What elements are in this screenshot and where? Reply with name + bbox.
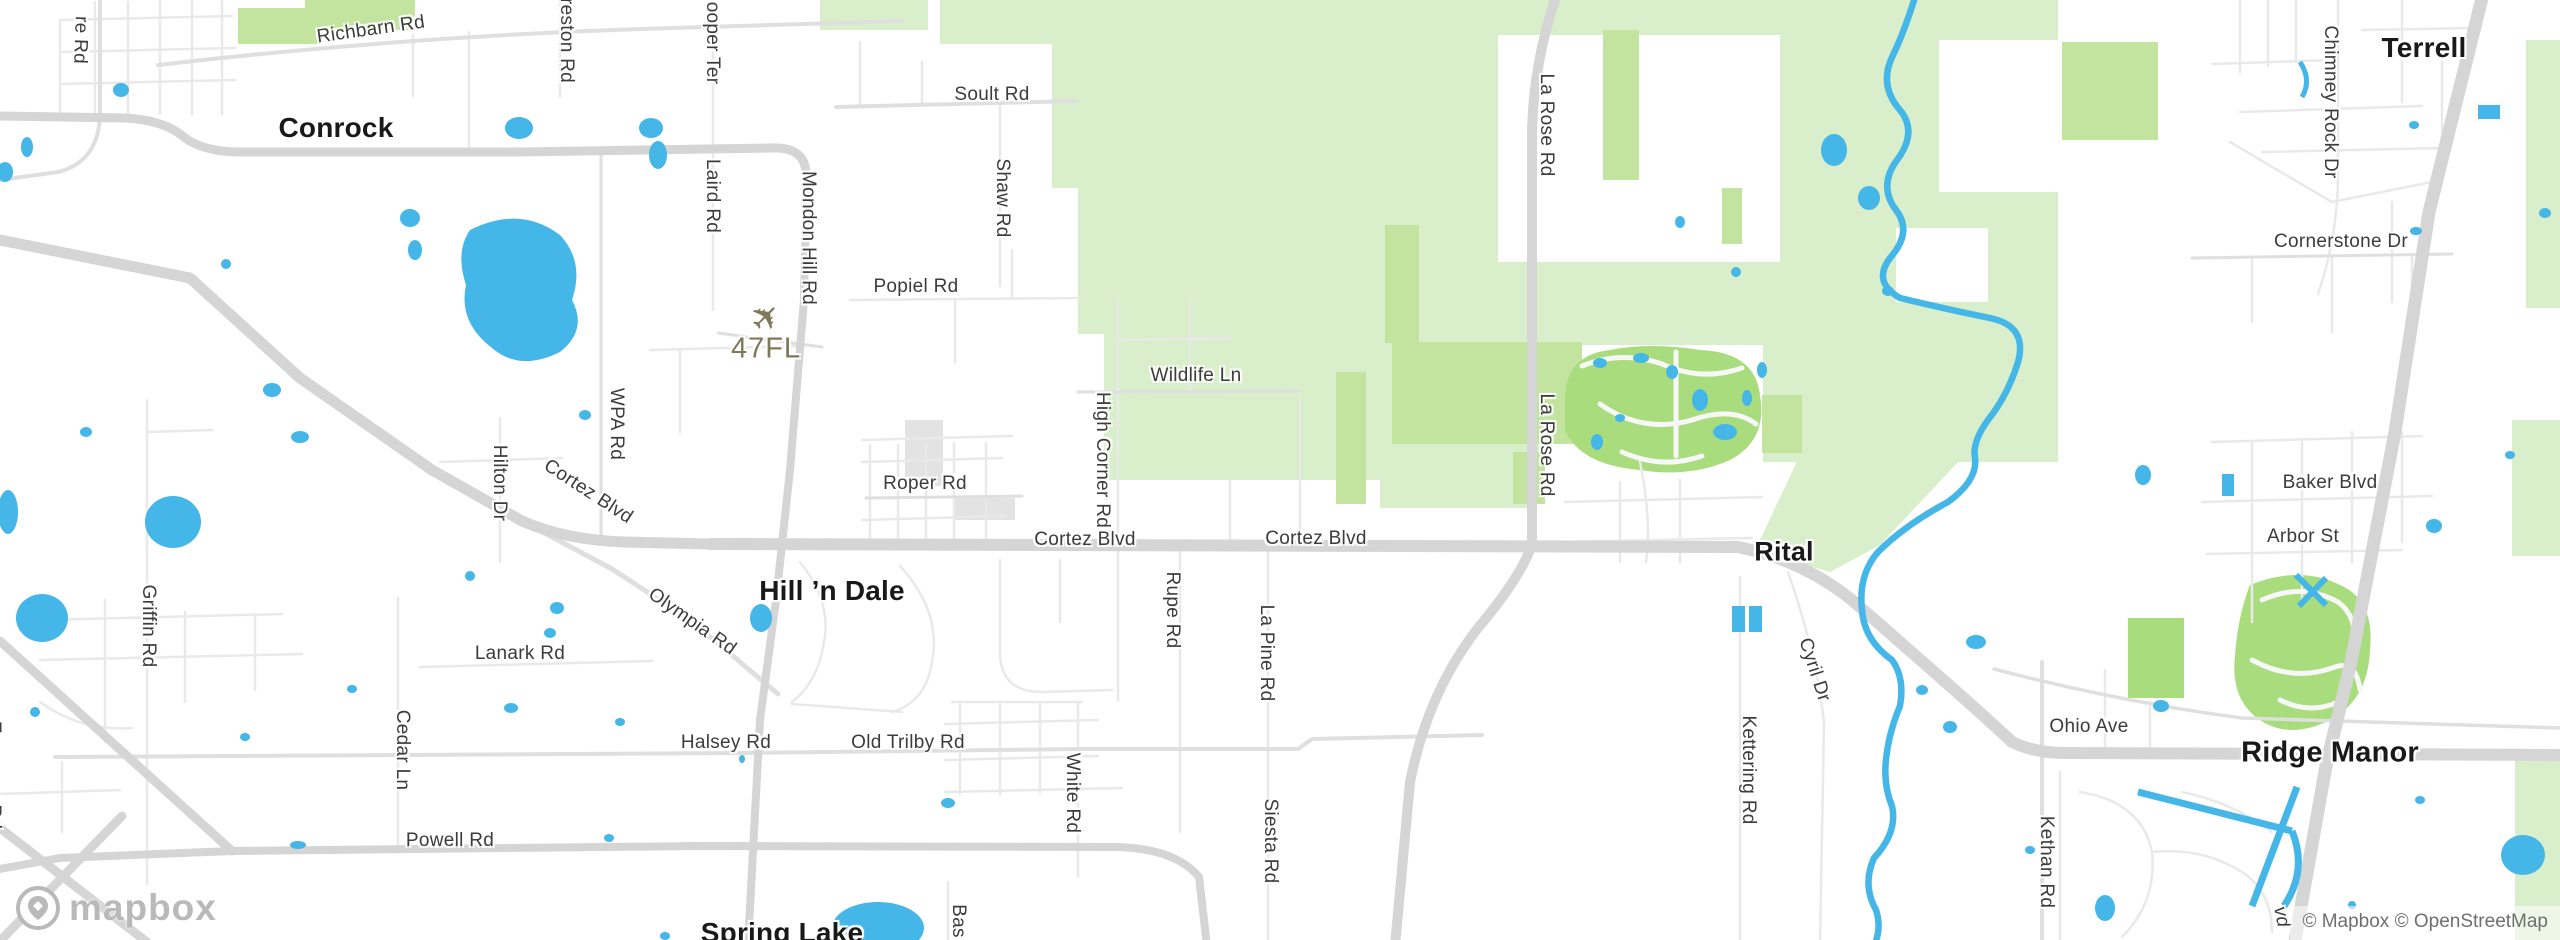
mapbox-logo[interactable]: mapbox [14, 884, 217, 932]
mapbox-pin-icon [14, 884, 62, 932]
map-graphics [0, 0, 2560, 940]
map-attribution[interactable]: © Mapbox © OpenStreetMap [2290, 906, 2560, 940]
map-canvas[interactable]: re RdRichbarn RdPreston RdHooper TerLair… [0, 0, 2560, 940]
mapbox-wordmark: mapbox [69, 887, 217, 929]
